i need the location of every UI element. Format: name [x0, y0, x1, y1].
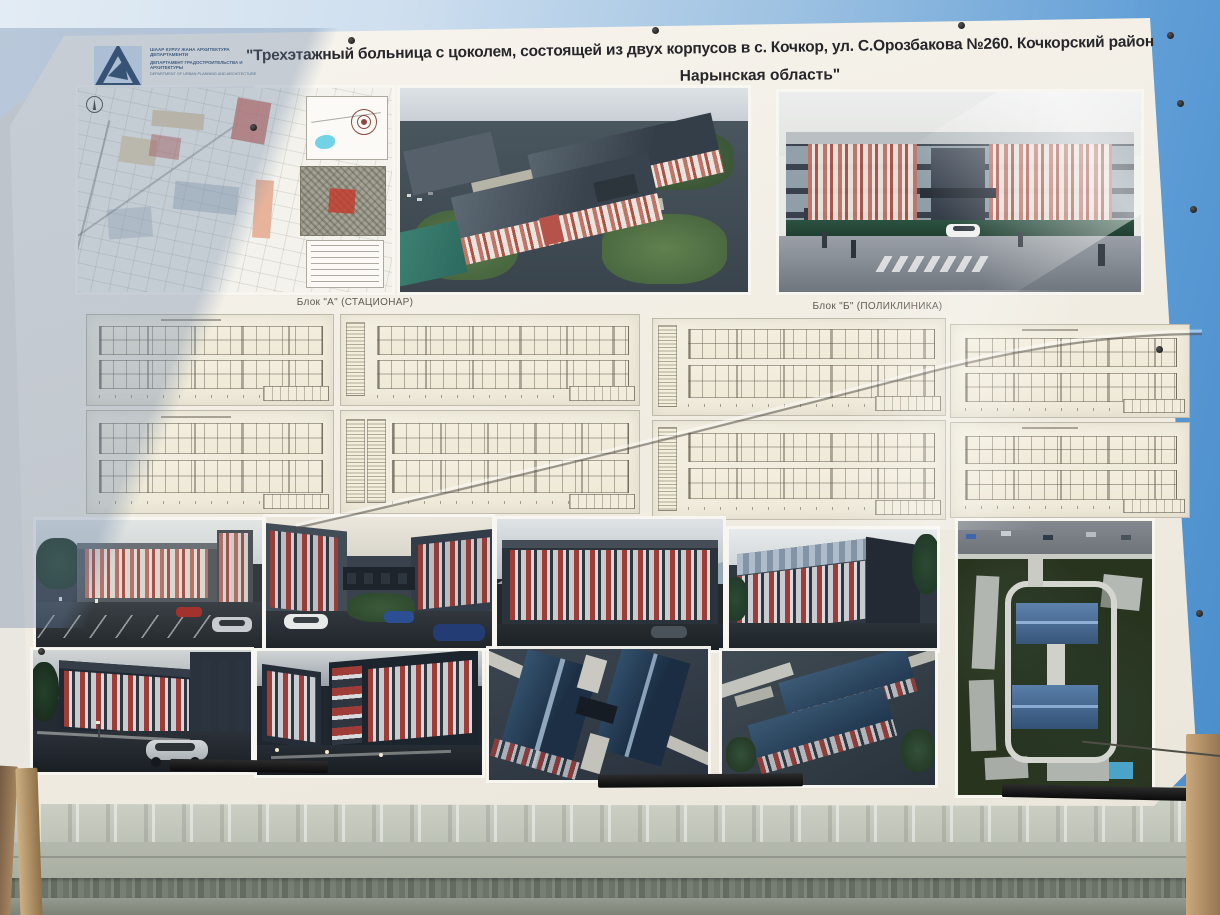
- bolt: [1177, 100, 1184, 107]
- bolt: [348, 37, 355, 44]
- banner-clamp-middle: [598, 773, 803, 787]
- construction-billboard-photo: ШААР КУРУУ ЖАНА АРХИТЕКТУРА ДЕПАРТАМЕНТИ…: [0, 0, 1220, 915]
- bolt: [958, 22, 965, 29]
- bolt: [1196, 610, 1203, 617]
- bolt: [1167, 32, 1174, 39]
- bolt: [652, 27, 659, 34]
- bolt: [250, 124, 257, 131]
- bolt: [38, 648, 45, 655]
- bolt: [1156, 346, 1163, 353]
- bolt: [1190, 206, 1197, 213]
- wooden-pole-right: [1186, 734, 1220, 915]
- banner-clamp-left: [170, 759, 328, 773]
